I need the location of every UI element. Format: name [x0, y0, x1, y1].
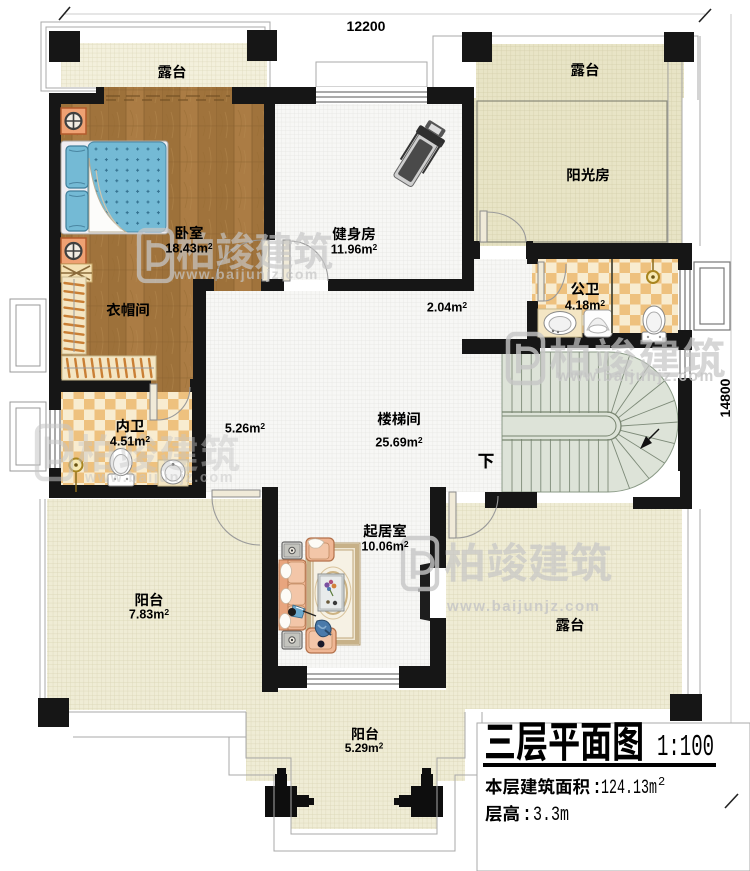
svg-text:18.43m2: 18.43m2: [165, 241, 212, 256]
svg-text:14800: 14800: [717, 378, 733, 417]
svg-text:4.18m2: 4.18m2: [565, 298, 605, 313]
svg-text:7.83m2: 7.83m2: [129, 607, 169, 622]
svg-text:25.69m2: 25.69m2: [375, 435, 422, 450]
svg-text:12200: 12200: [347, 18, 386, 34]
svg-text:2: 2: [658, 775, 665, 789]
svg-text:2.04m2: 2.04m2: [427, 300, 467, 315]
svg-text:www.baijunjz.com: www.baijunjz.com: [446, 598, 600, 615]
svg-text:4.51m2: 4.51m2: [110, 434, 150, 449]
svg-text::: :: [521, 804, 533, 827]
svg-text:www.baijunjz.com: www.baijunjz.com: [556, 368, 715, 385]
svg-text:1:100: 1:100: [657, 730, 714, 765]
svg-text:www.baijunjz.com: www.baijunjz.com: [173, 266, 319, 282]
svg-text:3.3m: 3.3m: [533, 804, 569, 827]
svg-text:10.06m2: 10.06m2: [361, 539, 408, 554]
svg-text:5.29m2: 5.29m2: [345, 741, 384, 755]
svg-text:124.13m: 124.13m: [601, 777, 657, 800]
svg-text:11.96m2: 11.96m2: [331, 242, 378, 257]
svg-text:5.26m2: 5.26m2: [225, 421, 265, 436]
svg-text:www.baijunjz.com: www.baijunjz.com: [84, 470, 234, 486]
